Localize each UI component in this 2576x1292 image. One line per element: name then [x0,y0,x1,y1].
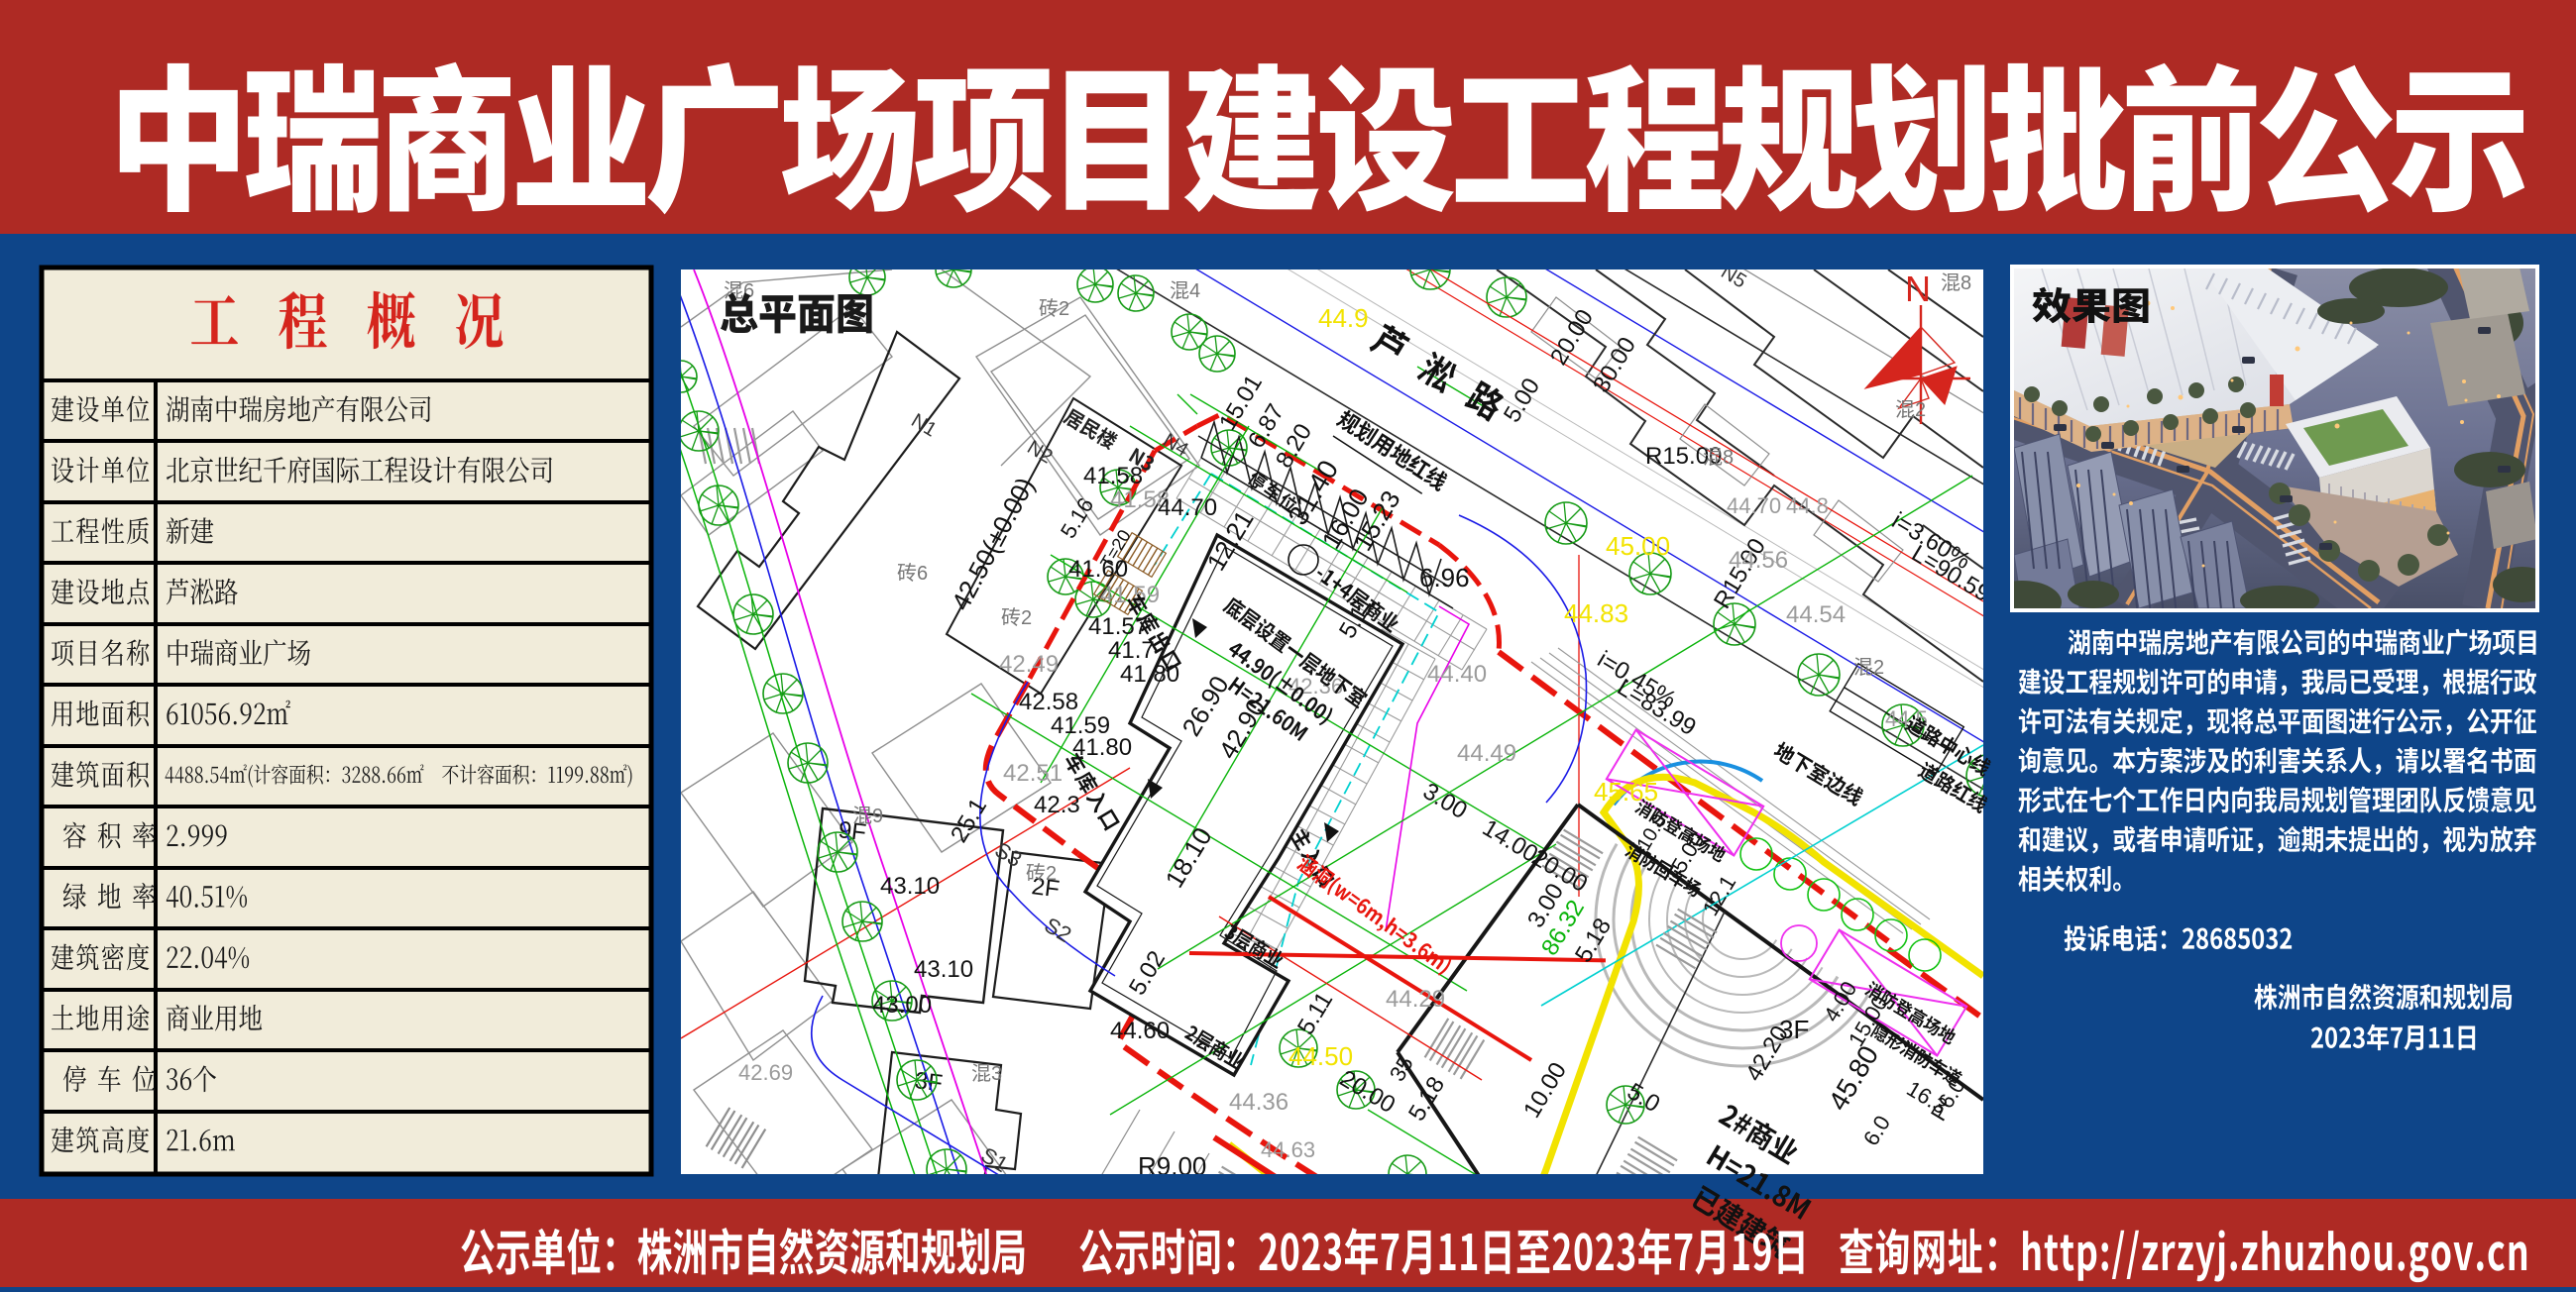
svg-text:砖2: 砖2 [1039,297,1069,320]
svg-text:混2: 混2 [1853,656,1884,679]
svg-text:42.51: 42.51 [1003,760,1063,787]
svg-text:44.56: 44.56 [1729,547,1788,574]
svg-text:42.49: 42.49 [999,651,1059,678]
svg-text:混8: 混8 [1703,446,1734,469]
svg-text:41.58: 41.58 [1083,463,1143,489]
svg-text:44.70: 44.70 [1727,493,1781,518]
svg-text:混8: 混8 [1941,271,1971,294]
svg-text:砖6: 砖6 [897,562,928,585]
svg-text:43.10: 43.10 [914,956,973,983]
svg-text:45.00: 45.00 [1606,531,1670,561]
svg-text:44.9: 44.9 [1318,303,1369,333]
svg-text:44.29: 44.29 [1386,986,1445,1013]
svg-text:44.8: 44.8 [1786,493,1829,518]
svg-text:44.63: 44.63 [1261,1137,1315,1162]
svg-text:44.83: 44.83 [1564,598,1628,628]
svg-text:44.60: 44.60 [1110,1018,1170,1044]
svg-text:混2: 混2 [1895,398,1926,421]
svg-text:混3: 混3 [971,1062,1002,1085]
svg-text:43.10: 43.10 [880,873,940,900]
svg-text:混4: 混4 [1170,279,1200,302]
svg-text:6.96: 6.96 [1419,563,1470,592]
svg-text:N: N [1905,269,1931,309]
svg-text:44.70: 44.70 [1158,494,1217,521]
svg-text:44.40: 44.40 [1427,661,1487,688]
svg-text:41.80: 41.80 [1120,661,1179,688]
svg-text:43.00: 43.00 [872,992,932,1019]
svg-text:砖2: 砖2 [1001,606,1032,629]
svg-text:44.50: 44.50 [1288,1041,1353,1071]
svg-text:砖2: 砖2 [1026,862,1057,885]
svg-text:42.69: 42.69 [738,1060,793,1085]
svg-text:41.57: 41.57 [1088,613,1148,640]
svg-text:混6: 混6 [724,279,754,302]
svg-text:混9: 混9 [852,805,883,827]
svg-text:45.65: 45.65 [1594,777,1658,807]
svg-text:3F: 3F [1779,1015,1809,1044]
svg-text:42.36: 42.36 [1288,674,1343,699]
svg-text:41.7: 41.7 [1108,637,1155,664]
svg-text:44.49: 44.49 [1457,740,1516,767]
svg-text:42.3: 42.3 [1034,792,1080,818]
svg-text:42.58: 42.58 [1019,689,1078,715]
svg-text:44.54: 44.54 [1786,601,1846,628]
svg-text:44.36: 44.36 [1229,1089,1288,1116]
